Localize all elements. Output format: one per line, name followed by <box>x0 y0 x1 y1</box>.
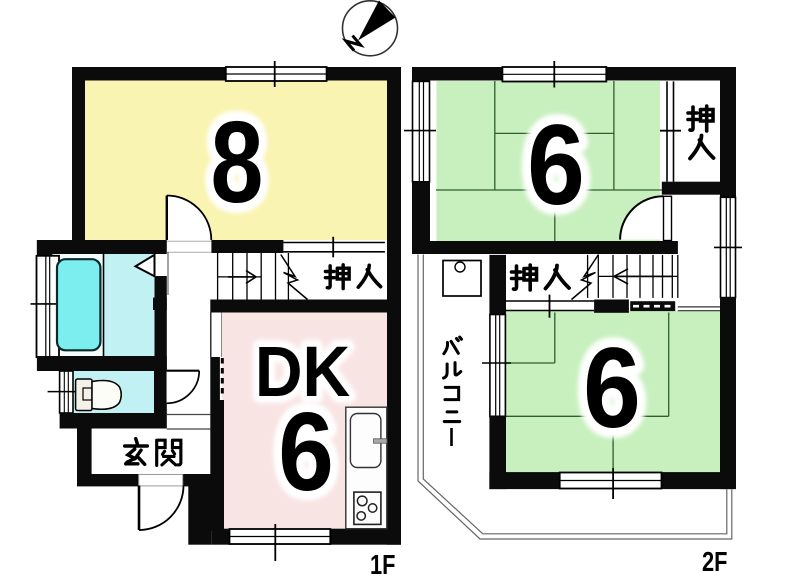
svg-text:8: 8 <box>211 98 264 227</box>
svg-text:6: 6 <box>583 324 641 452</box>
svg-text:6: 6 <box>278 390 334 514</box>
svg-text:6: 6 <box>527 101 585 229</box>
svg-text:2F: 2F <box>702 546 727 577</box>
svg-text:1F: 1F <box>370 549 395 580</box>
